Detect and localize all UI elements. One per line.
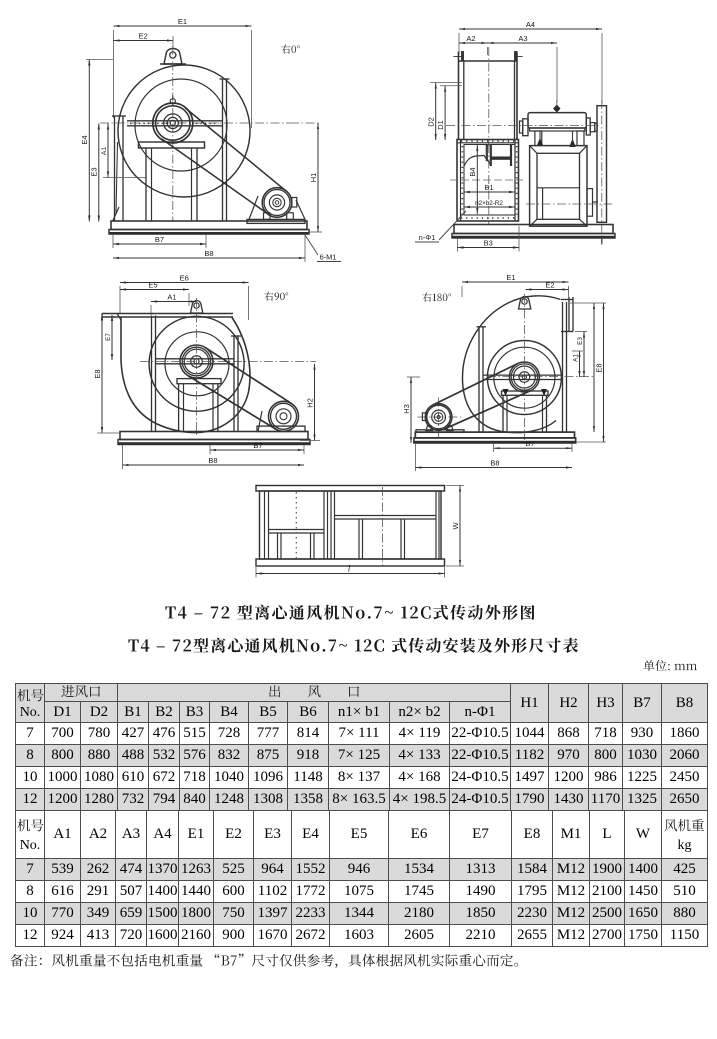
svg-text:B7: B7 <box>155 235 164 244</box>
svg-text:A2: A2 <box>466 34 475 43</box>
svg-text:E5: E5 <box>148 281 157 290</box>
svg-text:D1: D1 <box>436 120 445 130</box>
svg-text:A3: A3 <box>518 34 527 43</box>
svg-text:E6: E6 <box>180 274 189 283</box>
svg-text:W: W <box>451 522 460 530</box>
svg-text:E3: E3 <box>90 167 99 176</box>
svg-text:B8: B8 <box>490 459 499 468</box>
svg-text:B7: B7 <box>253 441 262 450</box>
svg-text:E3: E3 <box>577 337 584 345</box>
svg-text:A1: A1 <box>167 293 176 302</box>
svg-text:n2×b2-R2: n2×b2-R2 <box>475 200 503 207</box>
svg-text:E1: E1 <box>178 17 187 26</box>
svg-text:B7: B7 <box>525 439 534 448</box>
svg-text:A1: A1 <box>101 147 108 156</box>
svg-text:B8: B8 <box>204 249 213 258</box>
svg-text:H1: H1 <box>309 173 318 183</box>
svg-text:E1: E1 <box>506 273 515 282</box>
svg-text:B3: B3 <box>484 239 493 248</box>
svg-text:H2: H2 <box>305 398 314 408</box>
svg-text:A4: A4 <box>526 20 535 29</box>
svg-text:E8: E8 <box>594 363 603 372</box>
svg-text:E7: E7 <box>105 333 112 341</box>
svg-text:B8: B8 <box>208 456 217 465</box>
svg-text:l: l <box>348 564 351 574</box>
svg-text:E4: E4 <box>80 135 89 144</box>
svg-text:D2: D2 <box>427 117 436 127</box>
svg-text:H3: H3 <box>402 404 411 414</box>
svg-text:B4: B4 <box>468 167 477 176</box>
svg-text:E2: E2 <box>139 32 148 41</box>
svg-text:A1: A1 <box>572 354 579 362</box>
svg-text:6-M1: 6-M1 <box>319 253 336 262</box>
svg-text:n-Φ1: n-Φ1 <box>419 233 436 242</box>
svg-text:B1: B1 <box>484 183 493 192</box>
svg-text:E2: E2 <box>545 281 554 290</box>
svg-text:E8: E8 <box>93 369 102 378</box>
